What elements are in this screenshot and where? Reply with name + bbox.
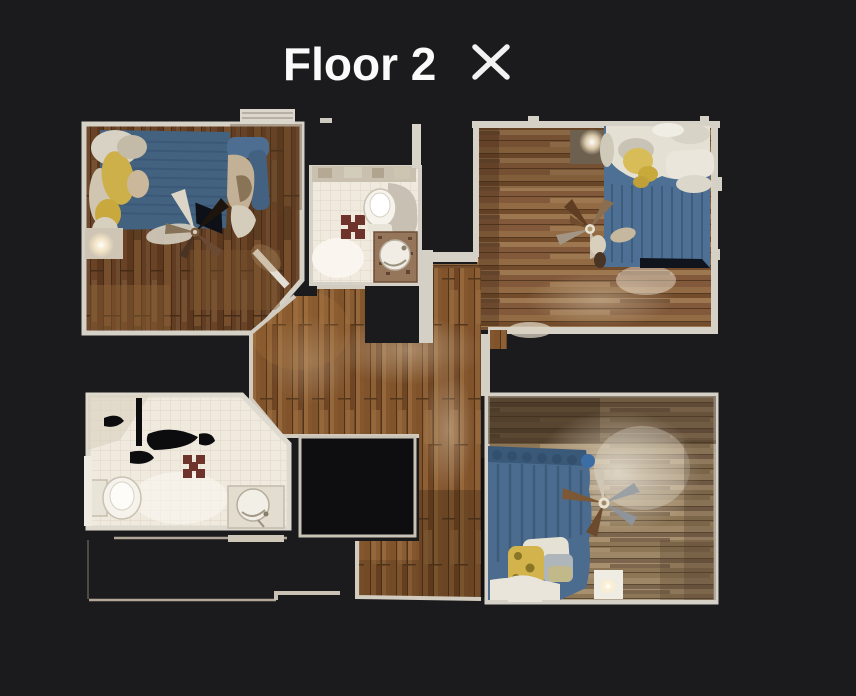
svg-text:Floor 2: Floor 2 [283, 38, 436, 90]
